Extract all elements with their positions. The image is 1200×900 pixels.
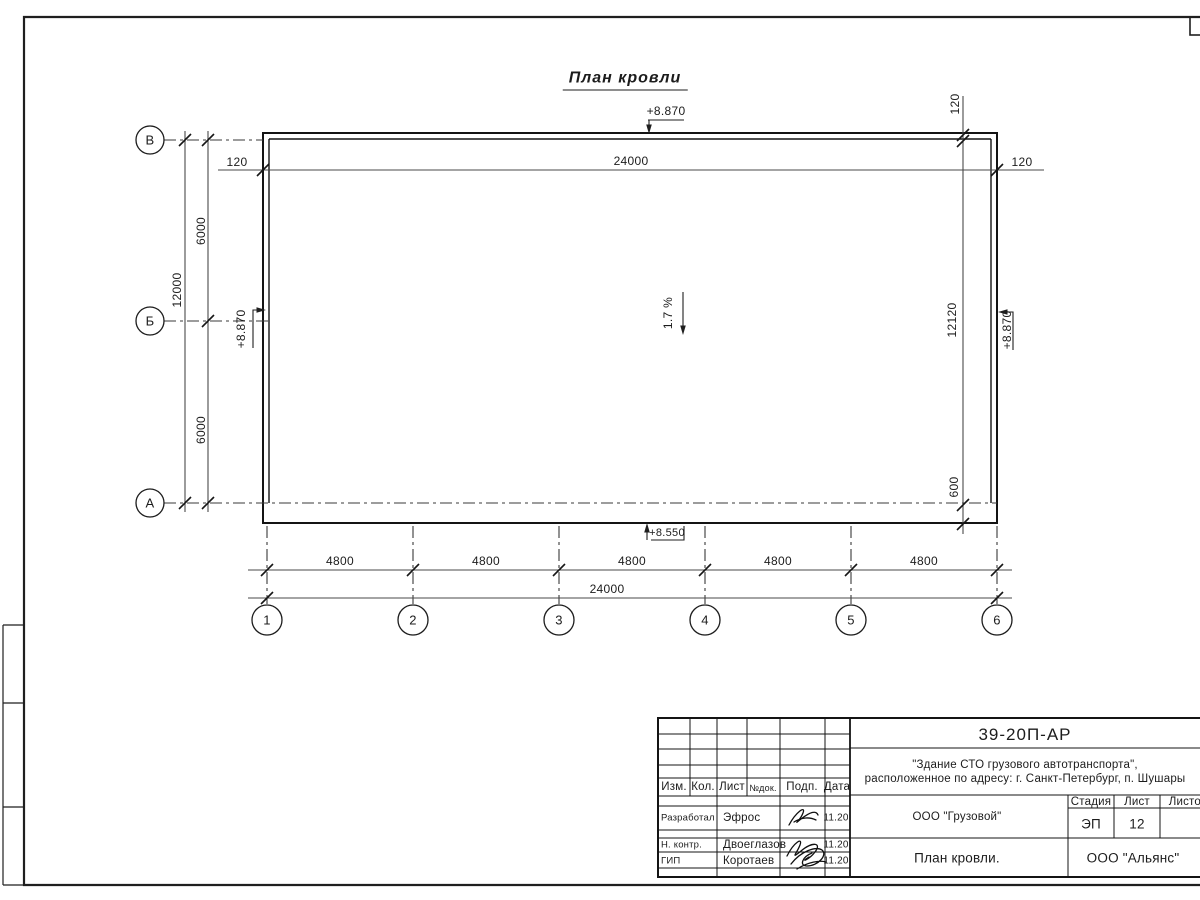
axis-bubble-v: В [146, 133, 155, 148]
dim-bay-2: 4800 [472, 554, 500, 568]
dim-bay-5: 4800 [910, 554, 938, 568]
dim-left-total: 12000 [170, 273, 184, 308]
sheet-title: План кровли. [914, 851, 1000, 866]
object-description-line1: "Здание СТО грузового автотранспорта", [912, 759, 1138, 771]
elevation-marks [253, 120, 1013, 540]
sheet-value: 12 [1129, 817, 1144, 832]
sheets-label: Листов [1169, 796, 1200, 808]
elevation-top: +8.870 [647, 104, 686, 118]
signature-strokes [787, 810, 826, 869]
dim-bay-1: 4800 [326, 554, 354, 568]
axis-bubble-4: 4 [701, 613, 709, 628]
elevation-bottom: +8.550 [649, 527, 685, 539]
row-role-ncontrol: Н. контр. [661, 840, 702, 851]
row-date-ncontrol: 11.20 [823, 840, 848, 851]
company-name: ООО "Альянс" [1087, 851, 1180, 866]
row-name-ncontrol: Двоеглазов [723, 839, 786, 851]
row-role-developed: Разработал [661, 813, 715, 824]
client-name: ООО "Грузовой" [913, 811, 1002, 823]
roof-outline [263, 133, 997, 523]
axis-bubble-a: А [146, 496, 155, 511]
dim-right-total: 12120 [945, 303, 959, 338]
sheet-label: Лист [1124, 796, 1150, 808]
elevation-right: +8.870 [1000, 311, 1014, 350]
row-date-developed: 11.20 [823, 813, 848, 824]
stage-label: Стадия [1071, 796, 1111, 808]
axis-lines [164, 140, 997, 604]
drawing-title: План кровли [563, 70, 688, 91]
dim-top-total: 24000 [614, 154, 649, 168]
object-description-line2: расположенное по адресу: г. Санкт-Петерб… [865, 773, 1186, 785]
col-list: Лист [719, 781, 745, 793]
dim-bay-4: 4800 [764, 554, 792, 568]
doc-code: 39-20П-АР [978, 725, 1071, 745]
col-izm: Изм. [661, 781, 686, 793]
dim-left-bay-upper: 6000 [194, 217, 208, 245]
axis-bubble-6: 6 [993, 613, 1001, 628]
page-frame [3, 17, 1200, 885]
drawing-sheet: План кровли +8.870 24000 120 120 120 120… [0, 0, 1200, 900]
dim-right-overhang: 600 [947, 477, 961, 498]
dim-offset-top-left: 120 [227, 155, 248, 169]
dim-bottom-total: 24000 [590, 582, 625, 596]
dimension-ticks [179, 129, 1003, 604]
slope-label: 1.7 % [661, 297, 675, 329]
signature-2 [787, 841, 826, 869]
col-podp: Подп. [786, 781, 818, 793]
axis-bubble-b: Б [146, 314, 155, 329]
elevation-left: +8.870 [234, 310, 248, 349]
col-ndok: №док. [749, 783, 776, 793]
axis-bubble-1: 1 [263, 613, 271, 628]
axis-bubble-3: 3 [555, 613, 563, 628]
col-data: Дата [824, 781, 850, 793]
row-role-gip: ГИП [661, 856, 680, 867]
dim-bay-3: 4800 [618, 554, 646, 568]
dim-left-bay-lower: 6000 [194, 416, 208, 444]
row-name-developed: Эфрос [723, 812, 760, 824]
row-name-gip: Коротаев [723, 855, 774, 867]
row-date-gip: 11.20 [823, 856, 848, 867]
slope-arrow [680, 292, 686, 335]
col-kol: Кол. [691, 781, 715, 793]
axis-bubble-5: 5 [847, 613, 855, 628]
dim-offset-top-right: 120 [1012, 155, 1033, 169]
signature-1 [789, 810, 818, 825]
dim-offset-top-right-vertical: 120 [948, 94, 962, 115]
stage-value: ЭП [1081, 817, 1101, 832]
axis-bubble-2: 2 [409, 613, 417, 628]
